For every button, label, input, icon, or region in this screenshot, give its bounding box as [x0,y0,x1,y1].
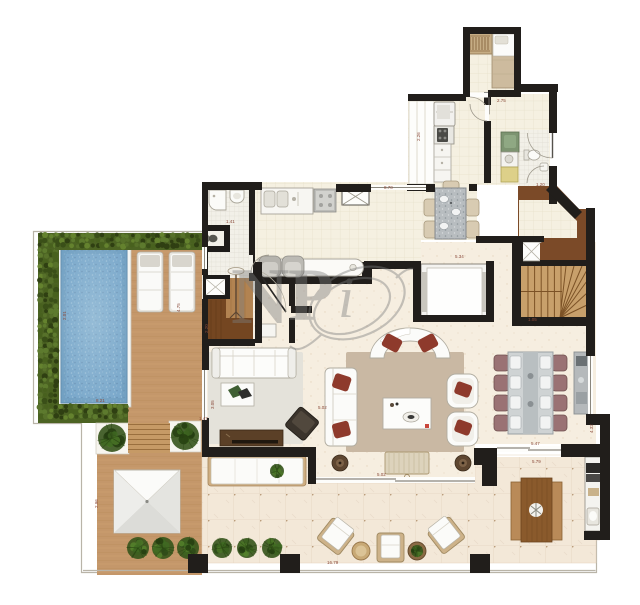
svg-text:2.26: 2.26 [416,132,421,141]
svg-text:5.79: 5.79 [532,459,541,464]
svg-text:5.02: 5.02 [318,405,327,410]
svg-text:1.47: 1.47 [199,416,208,421]
svg-text:1.20: 1.20 [536,182,545,187]
svg-text:2.01: 2.01 [62,311,67,320]
svg-text:4.32: 4.32 [589,424,594,433]
svg-text:5.34: 5.34 [455,254,464,259]
svg-text:5.47: 5.47 [531,441,540,446]
svg-text:8.21: 8.21 [96,398,105,403]
svg-text:N: N [231,251,290,341]
svg-text:1.41: 1.41 [226,219,235,224]
svg-text:2.75: 2.75 [497,98,506,103]
svg-text:8.70: 8.70 [384,185,393,190]
svg-text:2.20: 2.20 [204,324,209,333]
svg-text:3.05: 3.05 [210,400,215,409]
svg-text:1.05: 1.05 [528,317,537,322]
svg-text:2.96: 2.96 [94,499,99,508]
svg-text:5.02: 5.02 [377,472,386,477]
svg-text:4.75: 4.75 [176,303,181,312]
svg-text:16.79: 16.79 [327,560,339,565]
